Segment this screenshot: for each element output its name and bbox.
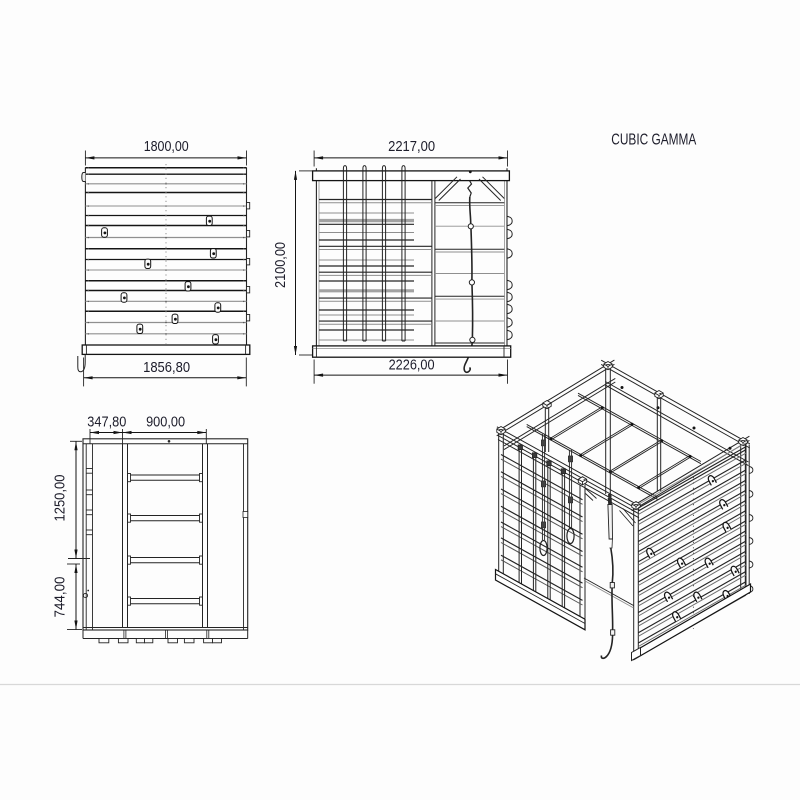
svg-text:744,00: 744,00: [53, 576, 69, 617]
svg-text:2226,00: 2226,00: [389, 357, 435, 373]
svg-text:2217,00: 2217,00: [388, 139, 435, 155]
svg-text:1856,80: 1856,80: [143, 360, 190, 376]
svg-text:CUBIC GAMMA: CUBIC GAMMA: [611, 132, 697, 149]
svg-text:1800,00: 1800,00: [144, 139, 189, 155]
svg-text:2100,00: 2100,00: [273, 242, 289, 288]
svg-text:347,80: 347,80: [87, 414, 126, 430]
svg-text:1250,00: 1250,00: [53, 474, 69, 521]
svg-text:900,00: 900,00: [146, 414, 185, 430]
